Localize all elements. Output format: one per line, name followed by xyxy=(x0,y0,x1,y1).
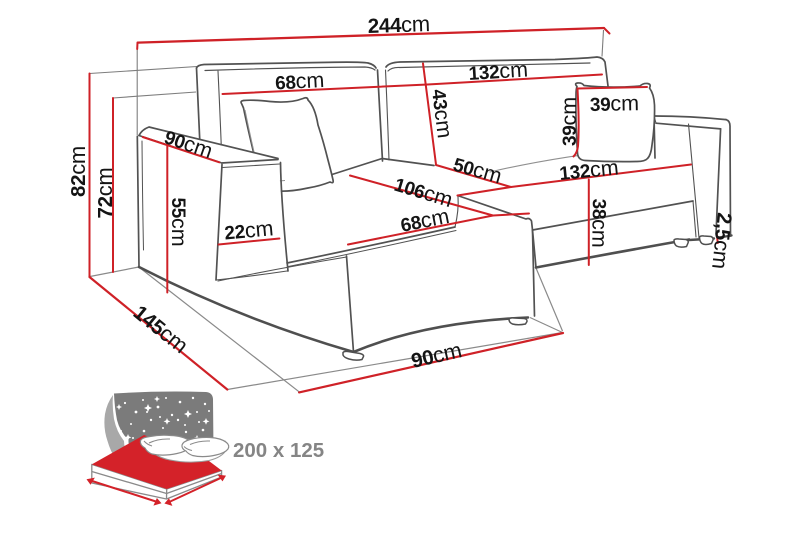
svg-text:132cm: 132cm xyxy=(558,155,620,185)
svg-text:72cm: 72cm xyxy=(92,168,117,219)
svg-text:68cm: 68cm xyxy=(398,204,451,237)
svg-text:82cm: 82cm xyxy=(65,146,90,197)
svg-text:50cm: 50cm xyxy=(451,152,505,189)
svg-text:39cm: 39cm xyxy=(557,97,581,146)
svg-text:244cm: 244cm xyxy=(367,11,430,38)
svg-text:145cm: 145cm xyxy=(129,299,193,357)
svg-text:39cm: 39cm xyxy=(590,91,640,116)
svg-text:200 x 125: 200 x 125 xyxy=(233,439,324,462)
svg-text:38cm: 38cm xyxy=(587,198,612,248)
svg-text:68cm: 68cm xyxy=(275,68,325,95)
svg-text:2,5cm: 2,5cm xyxy=(707,211,738,270)
svg-text:55cm: 55cm xyxy=(167,198,191,247)
svg-text:90cm: 90cm xyxy=(409,337,464,373)
